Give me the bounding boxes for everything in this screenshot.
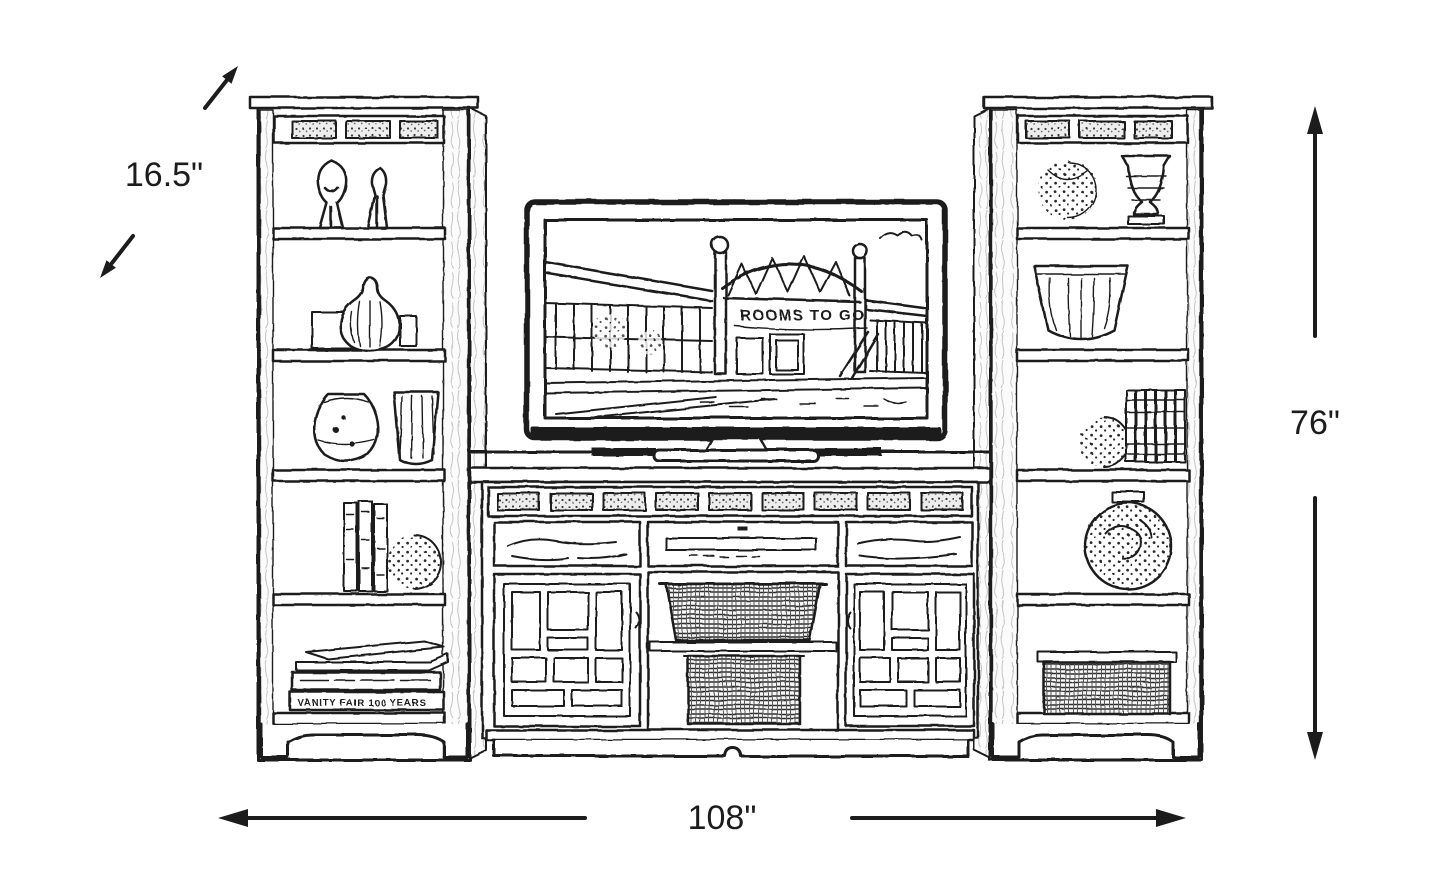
flat-screen-tv: ROOMS TO GO [527, 202, 945, 461]
woven-basket [1038, 652, 1176, 714]
basket-lower [688, 656, 800, 724]
console-tile-inlays [488, 487, 972, 516]
depth-dimension-label: 16.5" [118, 158, 210, 192]
lattice-door-left [494, 574, 640, 726]
wall-unit-sketch: VANITY FAIR 100 YEARS [0, 0, 1440, 880]
right-pier-top-cap [984, 97, 1212, 108]
left-pier-tile-inlays [274, 116, 444, 143]
console-plinth [494, 740, 968, 756]
right-pier-bookcase [974, 97, 1212, 760]
depth-arrow-upper [205, 66, 238, 108]
left-pier-top-cap [250, 97, 478, 108]
book-spine-text: VANITY FAIR 100 YEARS [298, 698, 427, 709]
basket-upper [666, 584, 820, 640]
tv-screen-sign-text: ROOMS TO GO [740, 307, 865, 324]
left-pier-bookcase: VANITY FAIR 100 YEARS [250, 97, 486, 760]
depth-arrow-lower [100, 236, 133, 278]
console-drawers [494, 522, 972, 566]
drawer-right [846, 522, 972, 566]
right-pier-tile-inlays [1018, 116, 1188, 143]
tv-console [470, 448, 990, 756]
lattice-door-right [846, 574, 974, 726]
drawer-left [494, 522, 640, 566]
fluted-bowl [1034, 266, 1128, 339]
dimension-diagram: VANITY FAIR 100 YEARS [0, 0, 1440, 880]
height-dimension-label: 76" [1275, 406, 1355, 440]
width-dimension-label: 108" [672, 801, 772, 835]
console-top [470, 468, 990, 482]
tv-stand-base [654, 450, 818, 461]
